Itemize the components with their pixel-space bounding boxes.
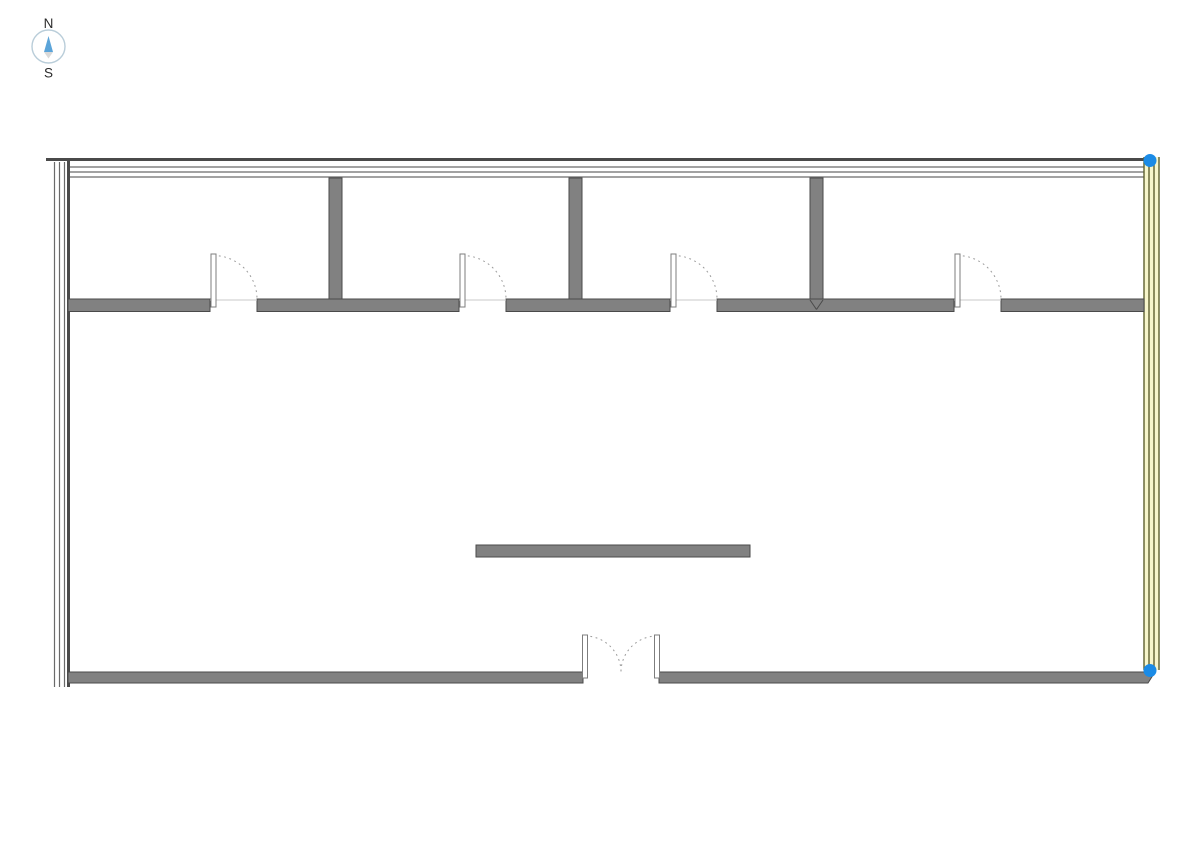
wall-segment (68, 299, 210, 312)
drawing-canvas[interactable]: N S (0, 0, 1191, 842)
door-leaf (211, 254, 216, 307)
compass-needle-icon (44, 36, 53, 52)
wall-exterior-east-selected[interactable] (1144, 157, 1159, 670)
door-leaf (671, 254, 676, 307)
door-2[interactable] (459, 254, 506, 307)
wall-segment (68, 672, 583, 683)
door-swing-arc (621, 636, 657, 672)
door-leaf (583, 635, 588, 678)
door-1[interactable] (210, 254, 257, 307)
compass-needle-tail (44, 52, 53, 59)
door-leaf (460, 254, 465, 307)
door-swing-arc (585, 636, 621, 672)
door-swing-arc (958, 256, 1002, 300)
north-label: N (44, 16, 54, 31)
wall-segment (1001, 299, 1144, 312)
wall-highlight-fill (1144, 157, 1159, 670)
wall-interior-corridor[interactable] (68, 299, 1144, 312)
wall-grip-top[interactable] (1144, 154, 1157, 167)
door-leaf (655, 635, 660, 678)
door-swing-arc (214, 256, 258, 300)
door-3[interactable] (670, 254, 717, 307)
wall-segment (810, 178, 823, 299)
wall-exterior-south[interactable] (68, 672, 1155, 683)
south-label: S (44, 66, 53, 81)
wall-freestanding[interactable] (476, 545, 750, 557)
wall-exterior-west[interactable] (55, 159, 69, 687)
wall-segment (257, 299, 459, 312)
entrance-double-door[interactable] (583, 635, 660, 678)
north-arrow[interactable]: N S (32, 16, 65, 81)
wall-segment (476, 545, 750, 557)
wall-segment (659, 672, 1155, 683)
wall-segment (329, 178, 342, 299)
wall-partition-2[interactable] (569, 178, 582, 299)
wall-segment (506, 299, 670, 312)
wall-segment (569, 178, 582, 299)
wall-partition-1[interactable] (329, 178, 342, 299)
door-leaf (955, 254, 960, 307)
wall-segment (717, 299, 954, 312)
door-4[interactable] (954, 254, 1001, 307)
wall-grip-bottom[interactable] (1144, 664, 1157, 677)
door-swing-arc (674, 256, 718, 300)
wall-exterior-north[interactable] (46, 160, 1144, 178)
wall-partition-3[interactable] (810, 178, 823, 310)
door-swing-arc (463, 256, 507, 300)
